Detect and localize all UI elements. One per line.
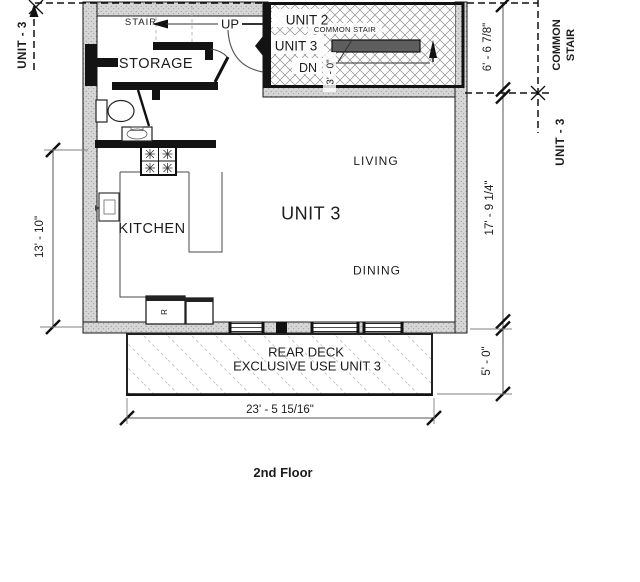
label-kitchen: KITCHEN bbox=[118, 221, 185, 237]
vanity-sink-icon bbox=[122, 127, 152, 141]
window bbox=[229, 322, 265, 333]
rear-deck: REAR DECK EXCLUSIVE USE UNIT 3 bbox=[127, 334, 432, 395]
dim-stair-depth: 6' - 6 7/8" bbox=[482, 23, 494, 71]
bath-wall-stub bbox=[152, 90, 160, 100]
storage-wall-lip bbox=[205, 50, 213, 60]
bathroom-door-leaf bbox=[138, 90, 149, 126]
boundary-label-common-stair: STAIR bbox=[565, 29, 577, 61]
storage-wall-bottom bbox=[112, 82, 218, 90]
storage-wall-top bbox=[153, 42, 213, 50]
dim-unit-depth: 17' - 9 1/4" bbox=[484, 181, 496, 236]
dim-deck-width: 23' - 5 15/16" bbox=[246, 404, 314, 416]
page-title: 2nd Floor bbox=[253, 465, 312, 480]
label-stair: STAIR bbox=[125, 17, 157, 28]
counter-right bbox=[189, 172, 222, 252]
label-common-stair: COMMON STAIR bbox=[314, 25, 376, 34]
storage-door-swing bbox=[211, 49, 227, 57]
dim-unit-left: 13' - 10" bbox=[34, 216, 46, 258]
wall-right bbox=[455, 2, 467, 333]
entry-door-swing-arc bbox=[228, 30, 263, 72]
storage-door-leaf bbox=[215, 57, 228, 82]
storage-wall-west bbox=[85, 44, 97, 86]
wall-bottom bbox=[83, 322, 467, 333]
storage-wall-stub bbox=[97, 58, 118, 67]
label-unit3: UNIT 3 bbox=[281, 204, 341, 224]
label-refrigerator: R bbox=[160, 309, 169, 315]
floor-plan-canvas: UNIT 2 COMMON STAIR UNIT 3 DN 3' - 0" ST… bbox=[0, 0, 640, 582]
boundary-label-left-unit: UNIT - 3 bbox=[17, 21, 29, 68]
dim-stair-width: 3' - 0" bbox=[326, 59, 337, 85]
window bbox=[363, 322, 404, 333]
kitchen-sink-icon bbox=[95, 193, 119, 221]
label-deck-line1: REAR DECK bbox=[268, 345, 344, 360]
label-unit3-door: UNIT 3 bbox=[275, 39, 318, 54]
storage-room: STAIR UP STORAGE bbox=[85, 4, 263, 100]
common-stair-block: UNIT 2 COMMON STAIR UNIT 3 DN 3' - 0" bbox=[228, 4, 463, 93]
window bbox=[311, 322, 360, 333]
label-dn: DN bbox=[299, 61, 317, 75]
label-up: UP bbox=[221, 17, 239, 32]
label-dining: DINING bbox=[353, 264, 401, 278]
stove-icon bbox=[141, 147, 176, 175]
refrigerator-icon: R bbox=[146, 296, 213, 324]
label-living: LIVING bbox=[353, 154, 398, 168]
stair-direction-arrow-icon bbox=[152, 20, 263, 29]
wall-post bbox=[276, 322, 287, 333]
boundary-label-right-unit: UNIT - 3 bbox=[555, 118, 567, 165]
windows bbox=[229, 322, 404, 333]
floor-plan-drawing: UNIT 2 COMMON STAIR UNIT 3 DN 3' - 0" ST… bbox=[0, 0, 640, 582]
label-storage: STORAGE bbox=[119, 56, 193, 72]
dim-deck-depth: 5' - 0" bbox=[481, 346, 493, 375]
toilet-icon bbox=[96, 100, 134, 122]
boundary-label-common: COMMON bbox=[551, 19, 563, 70]
wall-top bbox=[83, 2, 268, 16]
label-deck-line2: EXCLUSIVE USE UNIT 3 bbox=[233, 359, 381, 374]
